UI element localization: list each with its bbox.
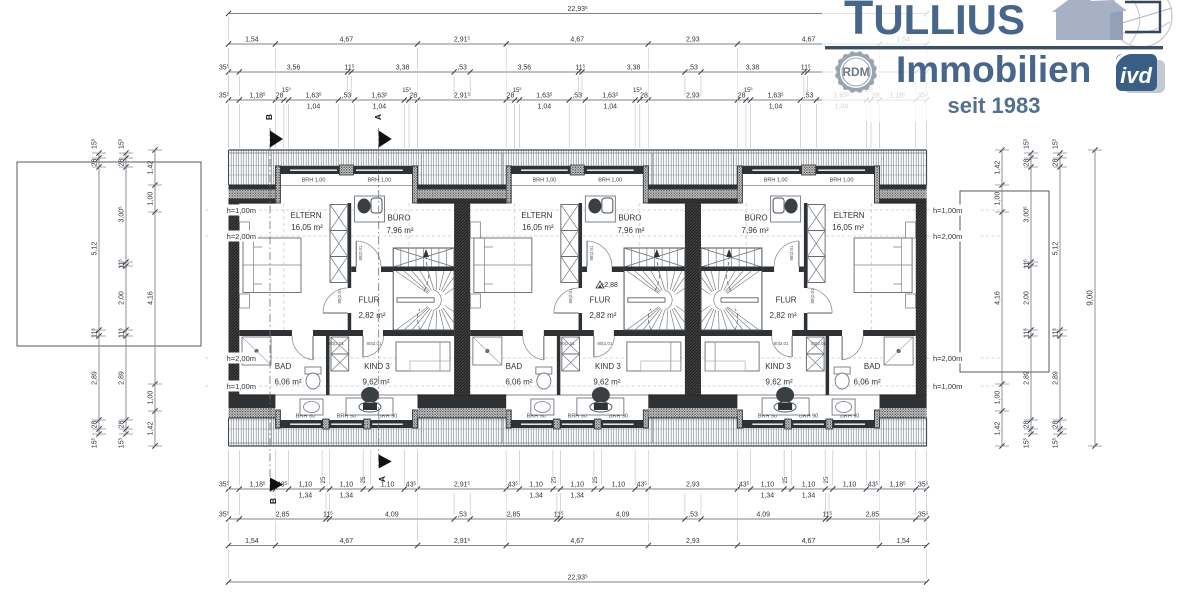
- svg-text:1,10: 1,10: [299, 482, 313, 489]
- svg-text:2,82 m²: 2,82 m²: [770, 311, 797, 320]
- svg-text:h=2,00m: h=2,00m: [227, 232, 256, 241]
- svg-text:22,935: 22,935: [568, 573, 589, 581]
- svg-text:,53: ,53: [457, 512, 467, 519]
- svg-text:Immobilien: Immobilien: [896, 49, 1091, 90]
- svg-text:1,10: 1,10: [761, 482, 775, 489]
- svg-text:88|2,01: 88|2,01: [589, 245, 594, 260]
- svg-text:1,00: 1,00: [995, 391, 1002, 405]
- svg-text:h=1,00m: h=1,00m: [933, 382, 962, 391]
- svg-text:,53: ,53: [688, 65, 698, 72]
- svg-text:6,06 m²: 6,06 m²: [505, 378, 532, 387]
- svg-text:1,34: 1,34: [802, 493, 816, 500]
- svg-text:3,38: 3,38: [746, 65, 760, 72]
- svg-text:1,10: 1,10: [570, 482, 584, 489]
- svg-text:25: 25: [321, 476, 327, 483]
- svg-text:,53: ,53: [688, 512, 698, 519]
- svg-text:BRH 1,00: BRH 1,00: [764, 178, 788, 184]
- svg-text:9,00: 9,00: [1086, 290, 1095, 306]
- svg-text:1,54: 1,54: [245, 37, 259, 44]
- svg-text:A: A: [373, 114, 383, 120]
- svg-text:2,85: 2,85: [276, 512, 290, 519]
- svg-text:28: 28: [92, 159, 99, 167]
- svg-text:80|2,01: 80|2,01: [367, 341, 382, 346]
- svg-text:1,00: 1,00: [148, 391, 155, 405]
- svg-text:ivd: ivd: [1120, 63, 1152, 88]
- svg-text:28: 28: [640, 93, 648, 100]
- svg-text:80|2,01: 80|2,01: [597, 341, 612, 346]
- svg-text:4,67: 4,67: [340, 37, 354, 44]
- svg-text:16,05 m²: 16,05 m²: [522, 223, 554, 232]
- svg-text:1,34: 1,34: [570, 493, 584, 500]
- svg-text:2,85: 2,85: [866, 512, 880, 519]
- svg-text:22,935: 22,935: [568, 5, 589, 13]
- svg-text:16,05 m²: 16,05 m²: [291, 223, 323, 232]
- svg-text:4,09: 4,09: [385, 512, 399, 519]
- svg-text:2,89: 2,89: [1024, 371, 1031, 385]
- svg-text:h=1,00m: h=1,00m: [227, 382, 256, 391]
- svg-text:BÜRO: BÜRO: [745, 214, 768, 223]
- svg-text:h=2,00m: h=2,00m: [227, 354, 256, 363]
- svg-text:6,06 m²: 6,06 m²: [854, 378, 881, 387]
- svg-text:2,85: 2,85: [507, 512, 521, 519]
- svg-text:80|2,01: 80|2,01: [774, 341, 789, 346]
- svg-text:,53: ,53: [342, 93, 352, 100]
- svg-text:28: 28: [92, 421, 99, 429]
- svg-text:1,04: 1,04: [373, 104, 387, 111]
- svg-text:4,67: 4,67: [802, 37, 816, 44]
- svg-text:88|2,01: 88|2,01: [568, 288, 573, 303]
- svg-text:3,38: 3,38: [627, 65, 641, 72]
- svg-text:TULLIUS: TULLIUS: [844, 0, 1025, 45]
- svg-text:A: A: [377, 476, 387, 482]
- svg-text:1,42: 1,42: [148, 161, 155, 175]
- svg-text:80|2,01: 80|2,01: [329, 341, 344, 346]
- svg-text:9,62 m²: 9,62 m²: [766, 378, 793, 387]
- svg-text:4,67: 4,67: [570, 37, 584, 44]
- svg-text:88|2,01: 88|2,01: [337, 288, 342, 303]
- svg-text:2,93: 2,93: [686, 482, 700, 489]
- svg-text:BAD: BAD: [506, 362, 523, 371]
- svg-text:,53: ,53: [804, 93, 814, 100]
- svg-text:1,34: 1,34: [761, 493, 775, 500]
- svg-text:1,34: 1,34: [299, 493, 313, 500]
- svg-text:3,56: 3,56: [287, 65, 301, 72]
- svg-text:28: 28: [1053, 421, 1060, 429]
- svg-text:28: 28: [1024, 421, 1031, 429]
- svg-text:B: B: [268, 498, 278, 504]
- svg-text:25: 25: [361, 476, 367, 483]
- svg-text:1,42: 1,42: [995, 422, 1002, 436]
- svg-text:4,16: 4,16: [148, 291, 155, 305]
- svg-text:28: 28: [1053, 159, 1060, 167]
- svg-text:88|2,01: 88|2,01: [358, 245, 363, 260]
- svg-text:1,00: 1,00: [995, 192, 1002, 206]
- svg-text:BRH 1,00: BRH 1,00: [830, 178, 854, 184]
- svg-text:2,82 m²: 2,82 m²: [589, 311, 616, 320]
- svg-text:h=2,00m: h=2,00m: [933, 354, 962, 363]
- svg-text:28: 28: [119, 421, 126, 429]
- svg-text:88|2,01: 88|2,01: [789, 245, 794, 260]
- svg-text:2,93: 2,93: [686, 538, 700, 545]
- svg-text:1,10: 1,10: [340, 482, 354, 489]
- svg-text:80|2,01: 80|2,01: [811, 341, 826, 346]
- svg-text:ELTERN: ELTERN: [834, 211, 865, 220]
- svg-text:5,12: 5,12: [1053, 242, 1060, 256]
- svg-text:BÜRO: BÜRO: [618, 214, 641, 223]
- svg-text:BAD: BAD: [275, 362, 292, 371]
- svg-text:1,54: 1,54: [896, 538, 910, 545]
- svg-text:h=1,00m: h=1,00m: [227, 206, 256, 215]
- svg-text:h=1,00m: h=1,00m: [933, 206, 962, 215]
- svg-text:ELTERN: ELTERN: [521, 211, 552, 220]
- svg-text:1,00: 1,00: [148, 192, 155, 206]
- svg-text:9,62 m²: 9,62 m²: [362, 378, 389, 387]
- svg-text:BRH 1,00: BRH 1,00: [367, 178, 391, 184]
- svg-text:28: 28: [409, 93, 417, 100]
- svg-text:28: 28: [119, 159, 126, 167]
- svg-text:1,42: 1,42: [148, 422, 155, 436]
- svg-text:B: B: [264, 114, 274, 120]
- svg-text:KIND 3: KIND 3: [595, 362, 621, 371]
- svg-text:1,04: 1,04: [537, 104, 551, 111]
- svg-text:4,67: 4,67: [340, 538, 354, 545]
- svg-text:3,56: 3,56: [518, 65, 532, 72]
- svg-text:2,00: 2,00: [1024, 291, 1031, 305]
- svg-text:KIND 3: KIND 3: [765, 362, 791, 371]
- svg-text:2,89: 2,89: [92, 371, 99, 385]
- svg-text:2,93: 2,93: [686, 37, 700, 44]
- svg-text:2,89: 2,89: [1053, 371, 1060, 385]
- svg-text:FLUR: FLUR: [776, 296, 797, 305]
- svg-text:1,34: 1,34: [340, 493, 354, 500]
- svg-text:1,34: 1,34: [529, 493, 543, 500]
- svg-text:3,38: 3,38: [396, 65, 410, 72]
- svg-text:BRH 1,00: BRH 1,00: [532, 178, 556, 184]
- svg-text:FLUR: FLUR: [359, 296, 380, 305]
- svg-text:1,10: 1,10: [529, 482, 543, 489]
- svg-text:ELTERN: ELTERN: [291, 211, 322, 220]
- svg-text:28: 28: [1024, 159, 1031, 167]
- svg-text:BAD: BAD: [864, 362, 881, 371]
- svg-text:1,42: 1,42: [995, 161, 1002, 175]
- svg-text:7,96 m²: 7,96 m²: [742, 226, 769, 235]
- svg-text:1,10: 1,10: [802, 482, 816, 489]
- svg-text:4,67: 4,67: [802, 538, 816, 545]
- svg-text:4,16: 4,16: [995, 291, 1002, 305]
- svg-text:BRH 1,00: BRH 1,00: [302, 178, 326, 184]
- svg-text:5,12: 5,12: [92, 242, 99, 256]
- svg-text:2,82 m²: 2,82 m²: [358, 311, 385, 320]
- svg-text:seit 1983: seit 1983: [948, 93, 1041, 118]
- svg-text:h=2,00m: h=2,00m: [933, 232, 962, 241]
- svg-text:4,09: 4,09: [756, 512, 770, 519]
- svg-text:2,89: 2,89: [119, 371, 126, 385]
- svg-text:1,04: 1,04: [603, 104, 617, 111]
- svg-text:1,04: 1,04: [307, 104, 321, 111]
- svg-text:80|2,01: 80|2,01: [560, 341, 575, 346]
- svg-text:2,93: 2,93: [686, 93, 700, 100]
- svg-text:7,96 m²: 7,96 m²: [617, 226, 644, 235]
- svg-text:7,96 m²: 7,96 m²: [386, 226, 413, 235]
- svg-text:9,62 m²: 9,62 m²: [593, 378, 620, 387]
- svg-text:FLUR: FLUR: [589, 296, 610, 305]
- svg-text:,53: ,53: [572, 93, 582, 100]
- svg-text:4,67: 4,67: [570, 538, 584, 545]
- svg-text:16,05 m²: 16,05 m²: [832, 223, 864, 232]
- svg-text:88|2,01: 88|2,01: [810, 288, 815, 303]
- svg-text:1,10: 1,10: [843, 482, 857, 489]
- svg-text:1,10: 1,10: [612, 482, 626, 489]
- svg-text:6,06 m²: 6,06 m²: [274, 378, 301, 387]
- svg-text:BRH 1,00: BRH 1,00: [598, 178, 622, 184]
- svg-text:1,54: 1,54: [245, 538, 259, 545]
- svg-text:1,04: 1,04: [769, 104, 783, 111]
- svg-text:4,09: 4,09: [616, 512, 630, 519]
- svg-text:,53: ,53: [457, 65, 467, 72]
- svg-text:2,00: 2,00: [119, 291, 126, 305]
- svg-text:RDM: RDM: [842, 65, 869, 79]
- svg-text:KIND 3: KIND 3: [364, 362, 390, 371]
- svg-text:BÜRO: BÜRO: [387, 214, 410, 223]
